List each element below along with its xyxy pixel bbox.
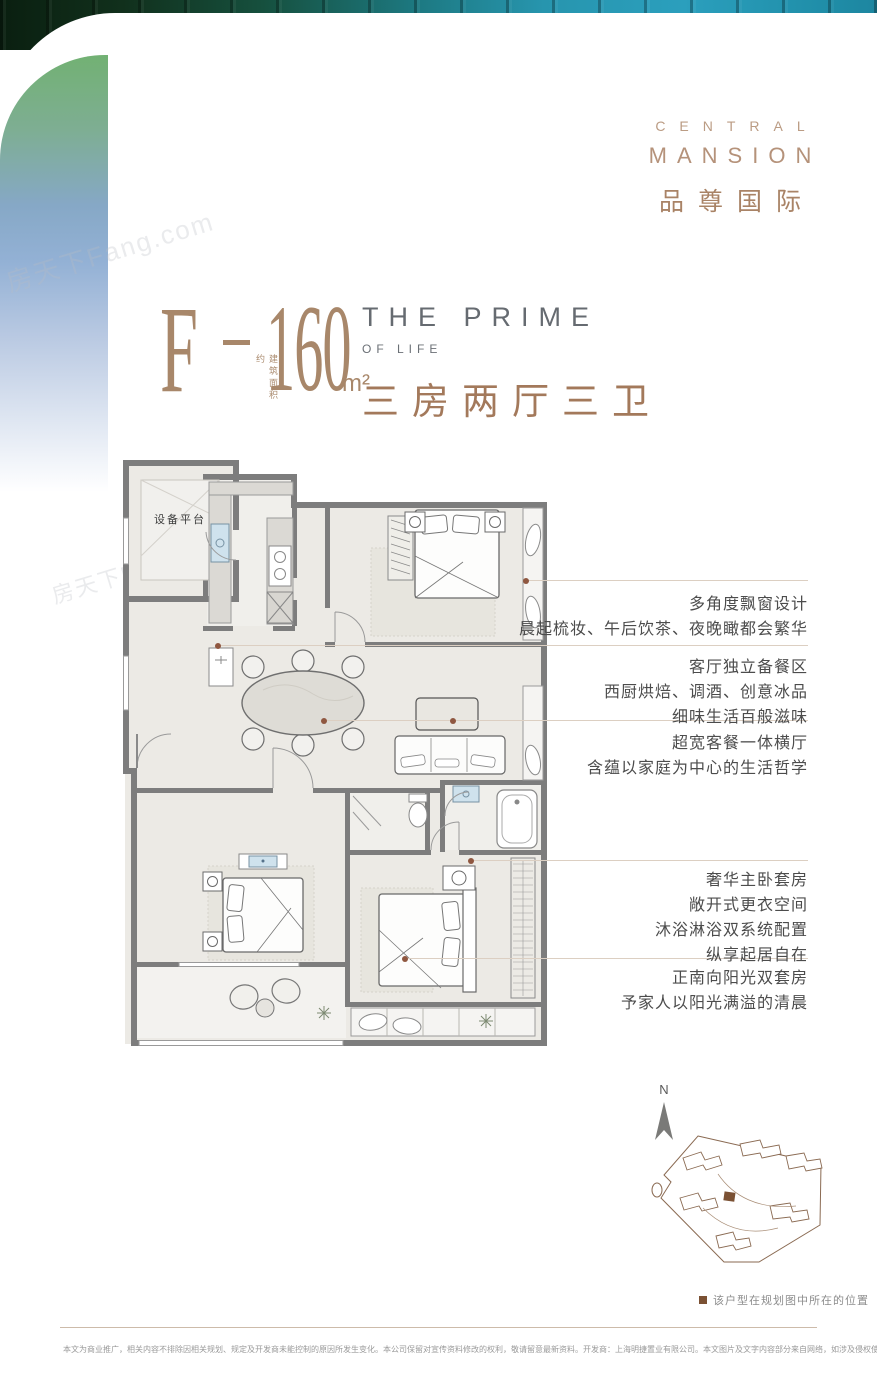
sofa (395, 736, 505, 774)
location-legend-square (699, 1296, 707, 1304)
brand-line-central: CENTRAL (640, 118, 834, 134)
headline-right: THE PRIME OF LIFE 三房两厅三卫 (362, 302, 662, 425)
floor-plan: 设备平台 (123, 460, 547, 1052)
annotation-line: 含蕴以家庭为中心的生活哲学 (587, 756, 808, 781)
plant (479, 1014, 493, 1028)
leader-dot (523, 578, 529, 584)
annotation-line: 奢华主卧套房 (655, 868, 808, 893)
bathtub (497, 790, 537, 848)
annotation-line: 细味生活百般滋味 (604, 705, 808, 730)
annotation-line: 正南向阳光双套房 (621, 966, 808, 991)
annotation-pantry: 客厅独立备餐区 西厨烘焙、调酒、创意冰品 细味生活百般滋味 (604, 655, 808, 730)
room-count-title: 三房两厅三卫 (362, 371, 662, 425)
dining-table (242, 671, 364, 735)
siteplan-caption: 该户型在规划图中所在的位置 (699, 1292, 869, 1308)
equipment-platform-label: 设备平台 (154, 512, 206, 526)
dining-area (242, 650, 364, 756)
annotation-south-rooms: 正南向阳光双套房 予家人以阳光满溢的清晨 (621, 966, 808, 1016)
leader-line-master-suite (471, 860, 808, 861)
english-subtitle: OF LIFE (362, 342, 662, 356)
leader-dot (321, 718, 327, 724)
bay-window (523, 686, 543, 780)
annotation-master-suite: 奢华主卧套房 敞开式更衣空间 沐浴淋浴双系统配置 纵享起居自在 (655, 868, 808, 968)
headboard (463, 888, 476, 992)
bed (379, 888, 476, 992)
svg-text:N: N (659, 1082, 668, 1097)
area-value: 160 (266, 287, 351, 411)
equipment-platform-room: 设备平台 (141, 480, 219, 580)
side-table (256, 999, 274, 1017)
leader-dot (402, 956, 408, 962)
english-title: THE PRIME (362, 302, 662, 333)
unit-letter: F (160, 288, 198, 412)
kitchen-flue (267, 592, 293, 623)
bed (223, 878, 303, 952)
leader-dot (215, 643, 221, 649)
annotation-bay-window: 多角度飘窗设计 晨起梳妆、午后饮茶、夜晚瞰都会繁华 (519, 592, 808, 642)
annotation-line: 晨起梳妆、午后饮茶、夜晚瞰都会繁华 (519, 617, 808, 642)
bathroom-sink (453, 786, 479, 802)
leader-line-bay-window (526, 580, 808, 581)
kitchen-sink (211, 524, 229, 562)
leader-dot (450, 718, 456, 724)
annotation-line: 客厅独立备餐区 (604, 655, 808, 680)
walk-in-closet (511, 858, 535, 998)
toilet (409, 794, 427, 827)
kitchen-stove (269, 546, 291, 586)
site-buildings (680, 1140, 822, 1250)
brand-line-chinese: 品尊国际 (640, 182, 834, 218)
nightstand (443, 866, 475, 890)
annotation-line: 多角度飘窗设计 (519, 592, 808, 617)
brand-block: CENTRAL MANSION 品尊国际 (640, 118, 820, 218)
dash-separator (223, 340, 250, 345)
annotation-line: 西厨烘焙、调酒、创意冰品 (604, 680, 808, 705)
brand-line-mansion: MANSION (640, 143, 830, 169)
dresser (239, 854, 287, 869)
unit-location-marker (723, 1191, 735, 1201)
plant (317, 1006, 331, 1020)
gradient-ribbon (0, 55, 108, 525)
entry-console (209, 648, 233, 686)
siteplan-caption-text: 该户型在规划图中所在的位置 (713, 1295, 869, 1307)
coffee-table (416, 698, 478, 730)
annotation-line: 超宽客餐一体横厅 (587, 731, 808, 756)
annotation-line: 敞开式更衣空间 (655, 893, 808, 918)
leader-line-pantry (218, 645, 808, 646)
site-plan: N (628, 1078, 868, 1283)
annotation-line: 纵享起居自在 (655, 943, 808, 968)
leader-dot (468, 858, 474, 864)
bay-window (351, 1008, 535, 1036)
footer-divider (60, 1327, 817, 1328)
annotation-line: 予家人以阳光满溢的清晨 (621, 991, 808, 1016)
annotation-line: 沐浴淋浴双系统配置 (655, 918, 808, 943)
annotation-living-dining: 超宽客餐一体横厅 含蕴以家庭为中心的生活哲学 (587, 731, 808, 781)
north-arrow-icon: N (655, 1082, 673, 1140)
disclaimer-text: 本文为商业推广，相关内容不排除因相关规划、规定及开发商未能控制的原因所发生变化。… (63, 1344, 853, 1355)
